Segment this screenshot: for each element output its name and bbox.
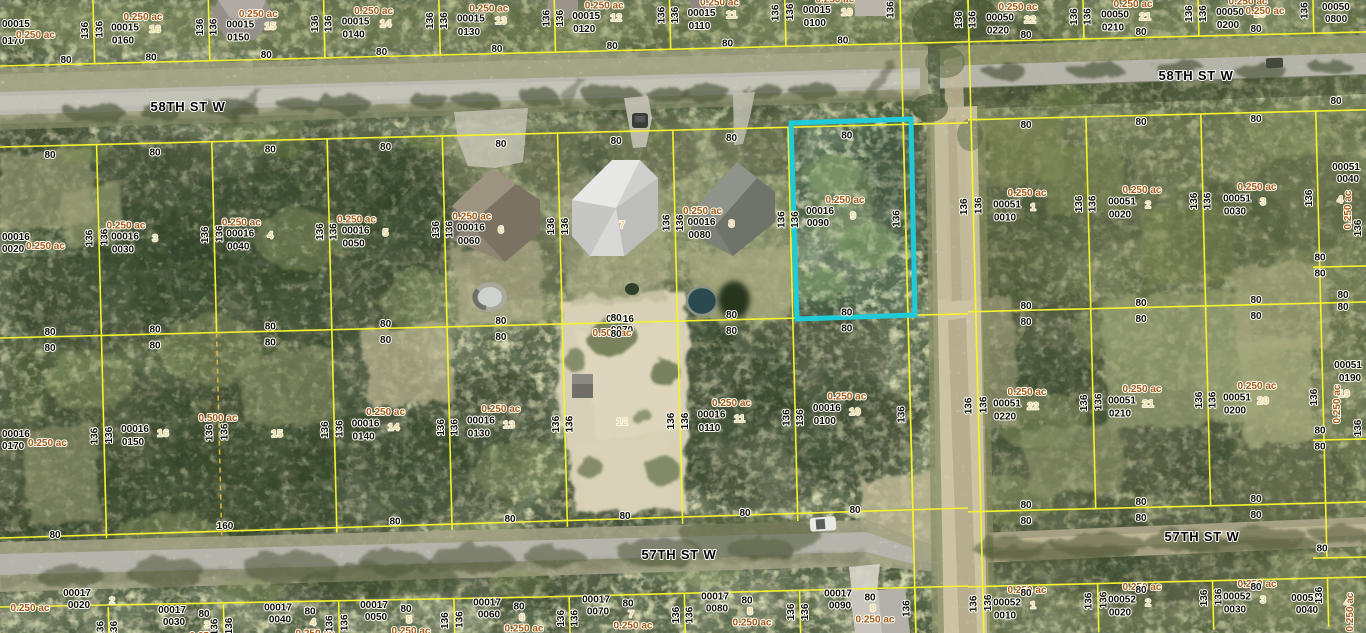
svg-text:136: 136 <box>565 415 576 432</box>
svg-text:0010: 0010 <box>994 610 1017 621</box>
svg-text:80: 80 <box>1330 96 1342 107</box>
svg-text:136: 136 <box>546 217 557 234</box>
svg-text:0060: 0060 <box>478 609 501 620</box>
svg-text:136: 136 <box>661 214 672 231</box>
svg-text:136: 136 <box>440 612 451 629</box>
svg-text:0050: 0050 <box>342 239 365 250</box>
svg-text:80: 80 <box>265 145 277 156</box>
svg-text:0150: 0150 <box>227 33 250 44</box>
svg-text:80: 80 <box>611 329 623 340</box>
svg-text:0080: 0080 <box>706 604 729 615</box>
svg-text:0200: 0200 <box>1217 20 1240 31</box>
svg-text:0.250 ac: 0.250 ac <box>585 0 624 11</box>
svg-text:14: 14 <box>380 18 392 30</box>
svg-text:0.250 ac: 0.250 ac <box>452 212 491 223</box>
svg-text:0020: 0020 <box>1109 210 1132 221</box>
svg-text:136: 136 <box>560 217 571 234</box>
svg-text:2: 2 <box>1145 199 1151 211</box>
svg-text:80: 80 <box>380 319 392 330</box>
svg-text:0.250 ac: 0.250 ac <box>1238 182 1277 193</box>
svg-text:136: 136 <box>968 11 979 28</box>
svg-text:160: 160 <box>217 521 234 532</box>
svg-text:0.250 ac: 0.250 ac <box>1123 185 1162 196</box>
svg-text:0020: 0020 <box>68 600 91 611</box>
svg-text:136: 136 <box>680 412 691 429</box>
svg-text:80: 80 <box>380 142 392 153</box>
svg-text:80: 80 <box>1020 120 1032 131</box>
svg-text:0030: 0030 <box>112 244 135 255</box>
svg-text:136: 136 <box>85 229 96 246</box>
svg-text:0220: 0220 <box>994 411 1017 422</box>
svg-text:80: 80 <box>1135 117 1147 128</box>
svg-text:0040: 0040 <box>227 242 250 253</box>
svg-text:0.250 ac: 0.250 ac <box>469 3 508 14</box>
svg-text:80: 80 <box>495 332 507 343</box>
svg-text:136: 136 <box>439 12 450 29</box>
svg-text:16: 16 <box>157 427 169 439</box>
svg-text:136: 136 <box>896 406 907 423</box>
svg-text:0.250 ac: 0.250 ac <box>999 2 1038 13</box>
svg-text:136: 136 <box>214 225 225 242</box>
svg-text:136: 136 <box>95 21 106 38</box>
svg-text:136: 136 <box>1198 5 1209 22</box>
svg-text:80: 80 <box>1314 442 1326 453</box>
svg-text:80: 80 <box>1020 30 1032 41</box>
svg-text:00051: 00051 <box>993 199 1021 210</box>
svg-text:0.250 ac: 0.250 ac <box>614 621 653 632</box>
svg-text:136: 136 <box>1304 189 1315 206</box>
svg-text:136: 136 <box>1079 394 1090 411</box>
svg-text:00051: 00051 <box>1223 194 1251 205</box>
svg-text:136: 136 <box>90 427 101 444</box>
svg-text:80: 80 <box>1337 302 1349 313</box>
svg-text:00015: 00015 <box>226 20 254 31</box>
svg-text:136: 136 <box>436 419 447 436</box>
svg-text:136: 136 <box>671 606 682 623</box>
svg-text:12: 12 <box>610 12 622 24</box>
svg-text:0.250 ac: 0.250 ac <box>505 623 544 633</box>
svg-text:0030: 0030 <box>1224 605 1247 616</box>
svg-text:00052: 00052 <box>1108 595 1136 606</box>
svg-text:00015: 00015 <box>342 17 370 28</box>
svg-text:136: 136 <box>1309 388 1320 405</box>
svg-text:5: 5 <box>406 614 412 626</box>
svg-text:80: 80 <box>1135 314 1147 325</box>
svg-text:00016: 00016 <box>457 223 485 234</box>
svg-text:80: 80 <box>60 55 72 66</box>
svg-text:0.250 ac: 0.250 ac <box>856 615 895 626</box>
svg-text:00015: 00015 <box>457 14 485 25</box>
svg-text:80: 80 <box>304 607 316 618</box>
svg-text:136: 136 <box>320 421 331 438</box>
svg-text:00016: 00016 <box>467 416 495 427</box>
svg-text:80: 80 <box>741 596 753 607</box>
svg-text:80: 80 <box>837 35 849 46</box>
svg-text:15: 15 <box>264 21 276 33</box>
svg-text:0090: 0090 <box>829 601 852 612</box>
svg-text:136: 136 <box>1088 195 1099 212</box>
svg-text:0.250 ac: 0.250 ac <box>354 6 393 17</box>
svg-text:00052: 00052 <box>993 597 1021 608</box>
svg-text:80: 80 <box>1250 24 1262 35</box>
svg-text:4: 4 <box>267 230 273 242</box>
svg-text:0.250 ac: 0.250 ac <box>337 215 376 226</box>
svg-text:0.250 ac: 0.250 ac <box>392 626 431 633</box>
svg-text:80: 80 <box>739 508 751 519</box>
svg-text:0.250 ac: 0.250 ac <box>124 12 163 23</box>
svg-text:136: 136 <box>978 396 989 413</box>
svg-text:136: 136 <box>80 22 91 39</box>
svg-text:0.250 ac: 0.250 ac <box>11 603 50 614</box>
svg-text:0210: 0210 <box>1102 23 1125 34</box>
svg-text:136: 136 <box>1353 419 1364 436</box>
svg-text:2: 2 <box>1145 597 1151 609</box>
svg-text:136: 136 <box>670 6 681 23</box>
svg-text:80: 80 <box>149 325 161 336</box>
svg-text:00016: 00016 <box>121 424 149 435</box>
svg-text:0200: 0200 <box>1224 406 1247 417</box>
svg-text:80: 80 <box>495 316 507 327</box>
svg-text:80: 80 <box>1135 27 1147 38</box>
svg-text:00016: 00016 <box>2 429 30 440</box>
svg-text:136: 136 <box>959 198 970 215</box>
svg-text:80: 80 <box>504 514 516 525</box>
svg-text:0110: 0110 <box>689 21 711 32</box>
svg-text:136: 136 <box>1208 391 1219 408</box>
svg-text:0.250 ac: 0.250 ac <box>712 398 751 409</box>
svg-text:0.500 ac: 0.500 ac <box>199 413 238 424</box>
svg-text:136: 136 <box>1203 192 1214 209</box>
svg-text:80: 80 <box>1135 298 1147 309</box>
svg-text:0040: 0040 <box>1296 605 1319 616</box>
svg-text:00017: 00017 <box>473 597 501 608</box>
svg-text:0120: 0120 <box>573 24 596 35</box>
svg-text:136: 136 <box>95 621 106 633</box>
svg-text:136: 136 <box>771 4 782 21</box>
svg-text:136: 136 <box>104 426 115 443</box>
svg-text:80: 80 <box>841 307 853 318</box>
svg-text:00051: 00051 <box>1223 393 1251 404</box>
svg-text:80: 80 <box>864 593 876 604</box>
svg-text:12: 12 <box>616 416 628 428</box>
svg-text:136: 136 <box>1184 5 1195 22</box>
svg-text:15: 15 <box>271 428 283 440</box>
svg-text:0090: 0090 <box>807 218 830 229</box>
svg-text:136: 136 <box>310 15 321 32</box>
svg-text:0040: 0040 <box>269 615 292 626</box>
svg-text:80: 80 <box>400 604 412 615</box>
svg-text:80: 80 <box>376 47 388 58</box>
svg-text:136: 136 <box>210 618 221 633</box>
svg-text:0.250 ac: 0.250 ac <box>16 30 55 41</box>
svg-text:00016: 00016 <box>352 418 380 429</box>
svg-text:22: 22 <box>1024 14 1036 26</box>
svg-text:136: 136 <box>1199 589 1210 606</box>
svg-text:2: 2 <box>109 595 115 607</box>
svg-text:00017: 00017 <box>360 600 388 611</box>
svg-text:1: 1 <box>1030 202 1036 214</box>
svg-text:00017: 00017 <box>158 605 186 616</box>
svg-text:00016: 00016 <box>226 229 254 240</box>
svg-text:0.250 ac: 0.250 ac <box>1008 387 1047 398</box>
svg-text:136: 136 <box>1083 8 1094 25</box>
svg-text:136: 136 <box>1098 591 1109 608</box>
svg-text:00017: 00017 <box>824 589 852 600</box>
svg-text:136: 136 <box>425 12 436 29</box>
svg-text:80: 80 <box>611 313 623 324</box>
svg-text:136: 136 <box>200 226 211 243</box>
svg-text:10: 10 <box>841 6 853 18</box>
svg-text:136: 136 <box>315 223 326 240</box>
svg-text:80: 80 <box>265 322 277 333</box>
svg-text:136: 136 <box>1069 8 1080 25</box>
svg-text:136: 136 <box>205 424 216 441</box>
svg-text:136: 136 <box>786 603 797 620</box>
svg-text:0.250 ac: 0.250 ac <box>366 407 405 418</box>
svg-text:0060: 0060 <box>458 236 481 247</box>
svg-text:00017: 00017 <box>701 592 729 603</box>
svg-text:80: 80 <box>149 341 161 352</box>
svg-text:0.250 ac: 0.250 ac <box>239 9 278 20</box>
svg-text:58TH ST W: 58TH ST W <box>1158 68 1233 83</box>
svg-text:80: 80 <box>1020 301 1032 312</box>
svg-text:80: 80 <box>1337 290 1349 301</box>
svg-text:00015: 00015 <box>688 8 716 19</box>
svg-text:10: 10 <box>849 406 861 418</box>
svg-text:00050: 00050 <box>1322 2 1350 13</box>
svg-text:58TH ST W: 58TH ST W <box>150 99 225 114</box>
svg-text:136: 136 <box>969 595 980 612</box>
svg-text:80: 80 <box>1020 317 1032 328</box>
svg-text:0.250 ac: 0.250 ac <box>1332 384 1343 423</box>
svg-text:57TH ST W: 57TH ST W <box>1164 529 1239 544</box>
svg-text:9: 9 <box>850 210 856 222</box>
svg-text:80: 80 <box>1020 588 1032 599</box>
svg-text:0010: 0010 <box>994 212 1017 223</box>
svg-text:0220: 0220 <box>987 26 1010 37</box>
svg-text:136: 136 <box>450 419 461 436</box>
svg-text:0.250 ac: 0.250 ac <box>26 241 65 252</box>
svg-text:7: 7 <box>628 609 634 621</box>
svg-text:0170: 0170 <box>2 441 25 452</box>
svg-text:00016: 00016 <box>688 217 716 228</box>
svg-text:13: 13 <box>495 15 507 27</box>
svg-text:136: 136 <box>334 420 345 437</box>
svg-text:80: 80 <box>622 599 634 610</box>
svg-text:0020: 0020 <box>2 244 25 255</box>
svg-text:80: 80 <box>149 148 161 159</box>
svg-text:80: 80 <box>1250 494 1262 505</box>
svg-text:80: 80 <box>265 338 277 349</box>
svg-text:00015: 00015 <box>2 19 30 30</box>
svg-text:80: 80 <box>145 53 157 64</box>
svg-text:136: 136 <box>555 10 566 27</box>
svg-text:136: 136 <box>445 221 456 238</box>
svg-text:80: 80 <box>1250 295 1262 306</box>
svg-text:21: 21 <box>1139 11 1151 23</box>
svg-text:80: 80 <box>619 511 631 522</box>
svg-text:136: 136 <box>99 228 110 245</box>
svg-text:0140: 0140 <box>342 30 365 41</box>
svg-text:136: 136 <box>1094 393 1105 410</box>
svg-text:21: 21 <box>1142 398 1154 410</box>
svg-text:0100: 0100 <box>804 18 827 29</box>
svg-text:136: 136 <box>785 3 796 20</box>
svg-text:136: 136 <box>1194 391 1205 408</box>
svg-text:8: 8 <box>729 218 735 230</box>
svg-text:80: 80 <box>380 335 392 346</box>
svg-text:136: 136 <box>781 409 792 426</box>
svg-text:136: 136 <box>776 211 787 228</box>
svg-text:0110: 0110 <box>699 423 721 434</box>
svg-text:16: 16 <box>149 24 161 36</box>
svg-text:136: 136 <box>1299 2 1310 19</box>
svg-text:136: 136 <box>795 409 806 426</box>
svg-text:3: 3 <box>152 233 158 245</box>
svg-text:0140: 0140 <box>352 431 375 442</box>
svg-text:136: 136 <box>666 412 677 429</box>
svg-text:00051: 00051 <box>993 398 1021 409</box>
svg-text:0160: 0160 <box>112 35 135 46</box>
svg-text:80: 80 <box>1020 516 1032 527</box>
svg-text:80: 80 <box>1250 582 1262 593</box>
svg-text:0.250 ac: 0.250 ac <box>1008 188 1047 199</box>
svg-text:136: 136 <box>219 423 230 440</box>
svg-text:136: 136 <box>1074 195 1085 212</box>
svg-text:00017: 00017 <box>264 603 292 614</box>
svg-text:0050: 0050 <box>365 612 388 623</box>
svg-text:11: 11 <box>726 9 737 21</box>
svg-text:136: 136 <box>541 10 552 27</box>
svg-text:14: 14 <box>388 422 400 434</box>
svg-text:136: 136 <box>685 606 696 623</box>
svg-text:80: 80 <box>1135 585 1147 596</box>
svg-text:136: 136 <box>983 594 994 611</box>
svg-text:9: 9 <box>870 603 876 615</box>
svg-text:0.250 ac: 0.250 ac <box>733 618 772 629</box>
svg-text:136: 136 <box>324 15 335 32</box>
svg-text:5: 5 <box>383 227 389 239</box>
svg-text:136: 136 <box>109 621 120 633</box>
svg-text:00051: 00051 <box>1108 395 1136 406</box>
svg-text:136: 136 <box>1353 219 1364 236</box>
svg-text:136: 136 <box>790 211 801 228</box>
svg-text:00050: 00050 <box>1216 7 1244 18</box>
svg-text:80: 80 <box>722 38 734 49</box>
svg-text:136: 136 <box>954 11 965 28</box>
svg-text:136: 136 <box>892 210 903 227</box>
svg-text:00051: 00051 <box>1334 360 1362 371</box>
svg-text:136: 136 <box>224 617 235 633</box>
svg-text:136: 136 <box>974 197 985 214</box>
svg-text:0.250 ac: 0.250 ac <box>28 438 67 449</box>
svg-text:00016: 00016 <box>806 206 834 217</box>
svg-text:0030: 0030 <box>1224 207 1247 218</box>
svg-text:136: 136 <box>556 610 567 627</box>
svg-text:80: 80 <box>495 139 507 150</box>
svg-text:80: 80 <box>44 327 56 338</box>
svg-text:00051: 00051 <box>1332 162 1360 173</box>
svg-text:0.250 ac: 0.250 ac <box>222 218 261 229</box>
svg-text:80: 80 <box>1135 497 1147 508</box>
svg-text:80: 80 <box>1250 311 1262 322</box>
svg-text:136: 136 <box>886 1 897 18</box>
svg-text:0070: 0070 <box>587 607 610 618</box>
svg-text:80: 80 <box>389 517 401 528</box>
svg-text:80: 80 <box>44 343 56 354</box>
svg-text:00051: 00051 <box>1108 196 1136 207</box>
svg-text:80: 80 <box>611 136 623 147</box>
svg-text:0.250 ac: 0.250 ac <box>683 206 722 217</box>
svg-text:80: 80 <box>49 530 61 541</box>
svg-text:136: 136 <box>195 18 206 35</box>
svg-text:00050: 00050 <box>986 13 1014 24</box>
svg-text:0130: 0130 <box>468 429 491 440</box>
svg-text:00052: 00052 <box>1223 592 1251 603</box>
svg-text:80: 80 <box>726 133 738 144</box>
svg-text:136: 136 <box>1214 588 1225 605</box>
svg-text:00016: 00016 <box>111 231 139 242</box>
svg-text:6: 6 <box>519 611 525 623</box>
svg-text:136: 136 <box>329 223 340 240</box>
svg-text:136: 136 <box>209 18 220 35</box>
svg-text:00016: 00016 <box>342 226 370 237</box>
svg-text:0030: 0030 <box>163 617 186 628</box>
svg-text:00016: 00016 <box>698 410 726 421</box>
svg-text:1: 1 <box>1030 600 1036 612</box>
svg-text:20: 20 <box>1257 395 1269 407</box>
svg-text:6: 6 <box>498 224 504 236</box>
svg-text:0020: 0020 <box>1109 608 1132 619</box>
svg-text:00017: 00017 <box>63 588 91 599</box>
svg-text:0.250 ac: 0.250 ac <box>107 220 146 231</box>
svg-text:80: 80 <box>1314 426 1326 437</box>
svg-text:0100: 0100 <box>814 416 837 427</box>
svg-text:0.250 ac: 0.250 ac <box>1246 6 1285 17</box>
svg-text:3: 3 <box>1260 196 1266 208</box>
svg-text:0150: 0150 <box>122 437 145 448</box>
svg-text:80: 80 <box>726 310 738 321</box>
svg-text:0210: 0210 <box>1109 409 1132 420</box>
svg-text:3: 3 <box>1260 594 1266 606</box>
svg-text:0.250 ac: 0.250 ac <box>481 404 520 415</box>
svg-text:4: 4 <box>310 617 316 629</box>
svg-text:0190: 0190 <box>1339 373 1362 384</box>
svg-text:136: 136 <box>964 397 975 414</box>
svg-text:80: 80 <box>1330 14 1342 25</box>
svg-text:80: 80 <box>726 326 738 337</box>
svg-text:136: 136 <box>1314 586 1325 603</box>
svg-text:22: 22 <box>1027 401 1039 413</box>
svg-text:80: 80 <box>1020 500 1032 511</box>
svg-text:0130: 0130 <box>458 27 481 38</box>
svg-text:80: 80 <box>849 505 861 516</box>
svg-text:11: 11 <box>734 413 745 425</box>
svg-text:136: 136 <box>656 6 667 23</box>
svg-text:80: 80 <box>261 50 273 61</box>
svg-text:0040: 0040 <box>1337 174 1360 185</box>
svg-text:0.250 ac: 0.250 ac <box>827 391 866 402</box>
svg-text:57TH ST W: 57TH ST W <box>641 547 716 562</box>
svg-text:00015: 00015 <box>111 22 139 33</box>
svg-text:136: 136 <box>901 600 912 617</box>
svg-text:80: 80 <box>1314 269 1326 280</box>
svg-text:80: 80 <box>841 130 853 141</box>
svg-text:80: 80 <box>1250 114 1262 125</box>
svg-text:80: 80 <box>841 323 853 334</box>
svg-text:00015: 00015 <box>572 11 600 22</box>
svg-text:80: 80 <box>607 41 619 52</box>
